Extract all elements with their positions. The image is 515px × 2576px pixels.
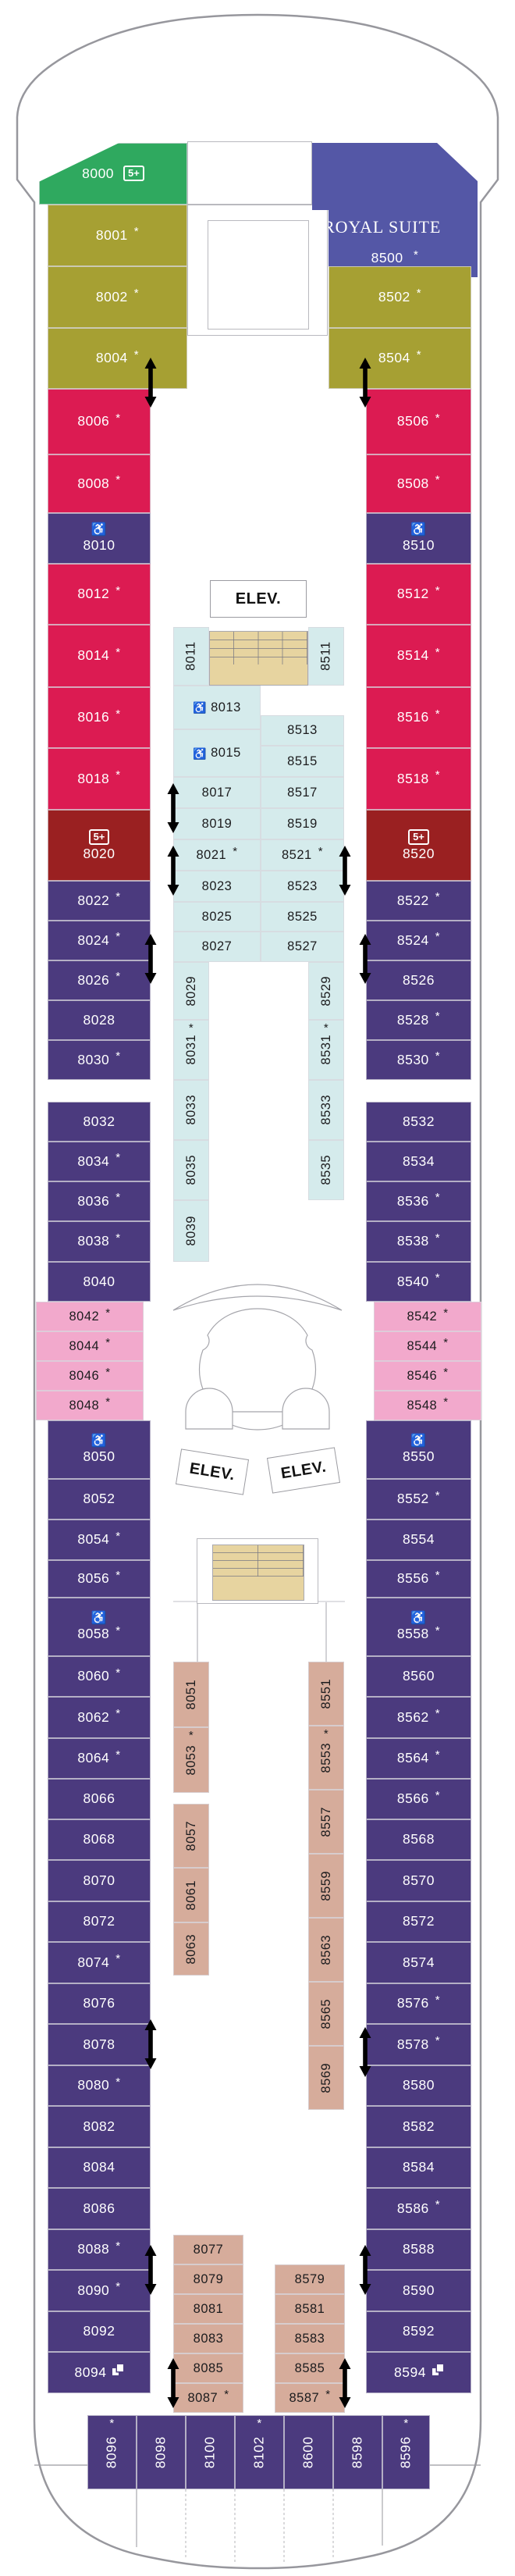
cabin-number: 8019 bbox=[202, 818, 233, 831]
cabin-number: 8552 bbox=[397, 1492, 429, 1506]
cabin-number: 8520 bbox=[403, 847, 435, 861]
cabin-number: 8001 bbox=[96, 229, 128, 243]
cabin-number: 8532 bbox=[403, 1115, 435, 1129]
cabin-number: 8048 bbox=[69, 1399, 99, 1413]
cabin-8096: 8096* bbox=[87, 2415, 137, 2489]
cabin-8027: 8027 bbox=[173, 932, 261, 962]
wheelchair-icon: ♿ bbox=[410, 1435, 426, 1448]
cabin-8581: 8581 bbox=[275, 2294, 345, 2324]
cabin-number: 8080 bbox=[77, 2079, 109, 2093]
cabin-number: 8034 bbox=[77, 1155, 109, 1169]
cabin-8010: ♿8010 bbox=[48, 513, 151, 564]
cabin-8046: 8046* bbox=[36, 1361, 144, 1391]
cabin-number: 8066 bbox=[83, 1792, 115, 1806]
cabin-number: 8560 bbox=[403, 1669, 435, 1683]
cabin-8036: 8036* bbox=[48, 1181, 151, 1221]
asterisk: * bbox=[105, 1366, 110, 1378]
cabin-number: 8580 bbox=[403, 2079, 435, 2093]
cabin-number: 8072 bbox=[83, 1915, 115, 1929]
cabin-8521: 8521* bbox=[261, 839, 344, 871]
cabin-number: 8521 bbox=[282, 849, 312, 862]
asterisk: * bbox=[189, 1022, 194, 1034]
cabin-8076: 8076 bbox=[48, 1983, 151, 2024]
elevator-label: ELEV. bbox=[188, 1459, 236, 1484]
cabin-number: 8558 bbox=[397, 1627, 429, 1641]
cabin-number: 8504 bbox=[378, 351, 410, 365]
wheelchair-icon: ♿ bbox=[410, 524, 426, 536]
cabin-number: 8102 bbox=[253, 2436, 267, 2468]
cabin-number: 8585 bbox=[295, 2362, 325, 2375]
cabin-8063: 8063 bbox=[173, 1922, 209, 1976]
cabin-8572: 8572 bbox=[366, 1901, 471, 1942]
cabin-8519: 8519 bbox=[261, 808, 344, 839]
cabin-number: 8098 bbox=[154, 2436, 169, 2468]
cabin-8584: 8584 bbox=[366, 2147, 471, 2188]
asterisk: * bbox=[435, 1749, 440, 1761]
cabin-8538: 8538* bbox=[366, 1221, 471, 1262]
asterisk: * bbox=[443, 1396, 448, 1408]
cabin-8553: 8553* bbox=[308, 1726, 344, 1790]
cabin-number: 8563 bbox=[320, 1935, 333, 1965]
cabin-number: 8030 bbox=[77, 1053, 109, 1067]
cabin-number: 8024 bbox=[77, 934, 109, 948]
cabin-8072: 8072 bbox=[48, 1901, 151, 1942]
cabin-number: 8060 bbox=[77, 1669, 109, 1683]
cabin-number: 8572 bbox=[403, 1915, 435, 1929]
cabin-number: 8512 bbox=[397, 587, 429, 601]
asterisk: * bbox=[115, 1667, 120, 1679]
asterisk: * bbox=[134, 349, 139, 361]
cabin-number: 8576 bbox=[397, 1997, 429, 2011]
cabin-8513: 8513 bbox=[261, 715, 344, 746]
cabin-8550: ♿8550 bbox=[366, 1420, 471, 1479]
cabin-8508: 8508* bbox=[366, 454, 471, 513]
cabin-8570: 8570 bbox=[366, 1860, 471, 1901]
cabin-number: 8023 bbox=[202, 880, 233, 893]
cabin-8053: 8053* bbox=[173, 1727, 209, 1793]
cabin-8014: 8014* bbox=[48, 625, 151, 687]
cabin-number: 8554 bbox=[403, 1533, 435, 1547]
cabin-number: 8038 bbox=[77, 1235, 109, 1249]
cabin-8518: 8518* bbox=[366, 748, 471, 810]
cabin-8025: 8025 bbox=[173, 902, 261, 932]
cabin-8032: 8032 bbox=[48, 1102, 151, 1142]
cabin-number: 8534 bbox=[403, 1155, 435, 1169]
wheelchair-icon: ♿ bbox=[410, 1612, 426, 1625]
cabin-number: 8579 bbox=[295, 2273, 325, 2286]
cabin-number: 8083 bbox=[194, 2332, 224, 2346]
cabin-8094: 8094 bbox=[48, 2352, 151, 2393]
asterisk: * bbox=[115, 412, 120, 424]
asterisk: * bbox=[325, 2389, 330, 2400]
cabin-number: 8061 bbox=[185, 1880, 198, 1911]
cabin-8534: 8534 bbox=[366, 1142, 471, 1181]
cabin-8524: 8524* bbox=[366, 921, 471, 960]
cabin-8554: 8554 bbox=[366, 1520, 471, 1560]
cabin-number: 8090 bbox=[77, 2284, 109, 2298]
cabin-8556: 8556* bbox=[366, 1560, 471, 1598]
cabin-number: 8559 bbox=[320, 1871, 333, 1901]
cabin-number: 8535 bbox=[320, 1155, 333, 1185]
asterisk: * bbox=[115, 1050, 120, 1062]
cabin-number: 8529 bbox=[320, 976, 333, 1007]
asterisk: * bbox=[115, 2281, 120, 2293]
cabin-number: 8042 bbox=[69, 1310, 99, 1324]
cabin-number: 8540 bbox=[397, 1275, 429, 1289]
cabin-8520: 5+8520 bbox=[366, 810, 471, 881]
cabin-8088: 8088* bbox=[48, 2229, 151, 2270]
stairs-arrow-icon bbox=[339, 2357, 352, 2409]
cabin-8515: 8515 bbox=[261, 746, 344, 777]
asterisk: * bbox=[435, 1272, 440, 1284]
cabin-number: 8022 bbox=[77, 894, 109, 908]
cabin-8600: 8600 bbox=[284, 2415, 333, 2489]
cabin-number: 8010 bbox=[83, 539, 115, 553]
cabin-8044: 8044* bbox=[36, 1331, 144, 1361]
cabin-number: 8531 bbox=[320, 1035, 333, 1065]
cabin-8015: ♿8015 bbox=[173, 729, 261, 777]
cabin-8050: ♿8050 bbox=[48, 1420, 151, 1479]
asterisk: * bbox=[115, 647, 120, 658]
cabin-8525: 8525 bbox=[261, 902, 344, 932]
cabin-8066: 8066 bbox=[48, 1779, 151, 1819]
cabin-8585: 8585 bbox=[275, 2353, 345, 2383]
cabin-number: 8581 bbox=[295, 2303, 325, 2316]
cabin-8019: 8019 bbox=[173, 808, 261, 839]
stairs-arrow-icon bbox=[167, 2357, 180, 2409]
stairs-arrow-icon bbox=[144, 2244, 158, 2296]
asterisk: * bbox=[115, 769, 120, 781]
stairs-arrow-icon bbox=[359, 357, 372, 408]
cabin-number: 8087 bbox=[187, 2392, 218, 2405]
cabin-number: 8100 bbox=[204, 2436, 218, 2468]
wheelchair-icon: ♿ bbox=[91, 1435, 107, 1448]
stairs-icon bbox=[167, 782, 180, 834]
stairs-grid bbox=[210, 632, 307, 664]
asterisk: * bbox=[435, 1490, 440, 1502]
cabin-number: 8502 bbox=[378, 290, 410, 305]
cabin-number: 8596 bbox=[400, 2436, 414, 2468]
cabin-8533: 8533 bbox=[308, 1080, 344, 1140]
cabin-8018: 8018* bbox=[48, 748, 151, 810]
cabin-number: 8020 bbox=[83, 847, 115, 861]
cabin-number: 8078 bbox=[83, 2038, 115, 2052]
asterisk: * bbox=[435, 891, 440, 903]
cabin-number: 8583 bbox=[295, 2332, 325, 2346]
cabin-8586: 8586* bbox=[366, 2188, 471, 2229]
cabin-number: 8004 bbox=[96, 351, 128, 365]
cabin-number: 8032 bbox=[83, 1115, 115, 1129]
cabin-number: 8013 bbox=[211, 701, 241, 714]
asterisk: * bbox=[435, 1790, 440, 1801]
cabin-8527: 8527 bbox=[261, 932, 344, 962]
cabin-8098: 8098 bbox=[137, 2415, 186, 2489]
asterisk: * bbox=[115, 1152, 120, 1163]
asterisk: * bbox=[435, 769, 440, 781]
cabin-number: 8515 bbox=[287, 755, 318, 768]
cabin-number: 8077 bbox=[194, 2243, 224, 2257]
stairs-icon bbox=[167, 2357, 180, 2409]
cabin-number: 8510 bbox=[403, 539, 435, 553]
cabin-8087: 8087* bbox=[173, 2383, 243, 2413]
stairs-icon bbox=[359, 357, 372, 408]
cabin-number: 8557 bbox=[320, 1807, 333, 1837]
cabin-number: 8068 bbox=[83, 1833, 115, 1847]
cabin-number: 8052 bbox=[83, 1492, 115, 1506]
asterisk: * bbox=[115, 891, 120, 903]
elevator-label: ELEV. bbox=[236, 590, 281, 608]
cabin-number: 8046 bbox=[69, 1370, 99, 1383]
asterisk: * bbox=[115, 585, 120, 597]
cabin-8052: 8052 bbox=[48, 1479, 151, 1520]
asterisk: * bbox=[318, 846, 323, 857]
cabin-8040: 8040 bbox=[48, 1262, 151, 1302]
asterisk: * bbox=[417, 287, 421, 299]
asterisk: * bbox=[224, 2389, 229, 2400]
cabin-8002: 8002* bbox=[48, 266, 187, 328]
cabin-number: 8057 bbox=[185, 1821, 198, 1851]
cabin-8535: 8535 bbox=[308, 1140, 344, 1200]
cabin-8540: 8540* bbox=[366, 1262, 471, 1302]
asterisk: * bbox=[324, 1728, 329, 1740]
cabin-8039: 8039 bbox=[173, 1200, 209, 1262]
cabin-number: 8551 bbox=[320, 1679, 333, 1709]
cabin-8504: 8504* bbox=[329, 328, 471, 389]
cabin-number: 8088 bbox=[77, 2243, 109, 2257]
cabin-8086: 8086 bbox=[48, 2188, 151, 2229]
wheelchair-icon: ♿ bbox=[91, 1612, 107, 1625]
asterisk: * bbox=[115, 1625, 120, 1637]
cabin-8558: ♿8558* bbox=[366, 1598, 471, 1656]
asterisk: * bbox=[115, 1953, 120, 1965]
cabin-8016: 8016* bbox=[48, 687, 151, 748]
cabin-number: 8026 bbox=[77, 974, 109, 988]
cabin-number: 8033 bbox=[185, 1095, 198, 1125]
cabin-8038: 8038* bbox=[48, 1221, 151, 1262]
asterisk: * bbox=[105, 1396, 110, 1408]
cabin-8023: 8023 bbox=[173, 871, 261, 902]
asterisk: * bbox=[134, 287, 139, 299]
cabin-8551: 8551 bbox=[308, 1662, 344, 1726]
stairs-icon bbox=[359, 2244, 372, 2296]
cabin-number: 8506 bbox=[397, 415, 429, 429]
cabin-number: 8548 bbox=[407, 1399, 437, 1413]
cabin-8070: 8070 bbox=[48, 1860, 151, 1901]
stairs-arrow-icon bbox=[359, 2026, 372, 2078]
cabin-8068: 8068 bbox=[48, 1819, 151, 1860]
cabin-number: 8536 bbox=[397, 1195, 429, 1209]
cabin-number: 8587 bbox=[289, 2392, 319, 2405]
cabin-number: 8085 bbox=[194, 2362, 224, 2375]
asterisk: * bbox=[115, 708, 120, 720]
cabin-8090: 8090* bbox=[48, 2270, 151, 2311]
cabin-8598: 8598 bbox=[333, 2415, 382, 2489]
cabin-8021: 8021* bbox=[173, 839, 261, 871]
cabin-number: 8025 bbox=[202, 910, 233, 924]
connecting-rooms-icon bbox=[112, 2364, 123, 2375]
cabin-8523: 8523 bbox=[261, 871, 344, 902]
cabin-8565: 8565 bbox=[308, 1982, 344, 2046]
cabin-number: 8044 bbox=[69, 1340, 99, 1353]
asterisk: * bbox=[324, 1022, 329, 1034]
cabin-8033: 8033 bbox=[173, 1080, 209, 1140]
cabin-8080: 8080* bbox=[48, 2065, 151, 2106]
cabin-number: 8074 bbox=[77, 1956, 109, 1970]
cabin-8590: 8590 bbox=[366, 2270, 471, 2311]
stairs-icon bbox=[339, 845, 352, 896]
cabin-8035: 8035 bbox=[173, 1140, 209, 1200]
asterisk: * bbox=[435, 708, 440, 720]
cabin-number: 8594 bbox=[394, 2366, 426, 2380]
stairs-arrow-icon bbox=[359, 933, 372, 985]
cabin-number: 8518 bbox=[397, 772, 429, 786]
asterisk: * bbox=[233, 846, 237, 857]
cabin-8081: 8081 bbox=[173, 2294, 243, 2324]
wheelchair-icon: ♿ bbox=[91, 524, 107, 536]
cabin-8576: 8576* bbox=[366, 1983, 471, 2024]
asterisk: * bbox=[435, 474, 440, 486]
asterisk: * bbox=[435, 931, 440, 942]
cabin-8512: 8512* bbox=[366, 564, 471, 625]
cabin-8526: 8526 bbox=[366, 960, 471, 1000]
asterisk: * bbox=[189, 1730, 194, 1741]
cabin-number: 8569 bbox=[320, 2063, 333, 2093]
cabin-8514: 8514* bbox=[366, 625, 471, 687]
cabin-number: 8016 bbox=[77, 711, 109, 725]
cabin-number: 8015 bbox=[211, 746, 241, 760]
asterisk: * bbox=[435, 412, 440, 424]
cabin-number: 8522 bbox=[397, 894, 429, 908]
cabin-number: 8064 bbox=[77, 1751, 109, 1765]
cabin-number: 8600 bbox=[302, 2436, 316, 2468]
cabin-8042: 8042* bbox=[36, 1302, 144, 1331]
asterisk: * bbox=[115, 1569, 120, 1581]
five-plus-icon: 5+ bbox=[89, 829, 110, 845]
asterisk: * bbox=[435, 1569, 440, 1581]
cabin-8024: 8024* bbox=[48, 921, 151, 960]
stairs-icon bbox=[144, 2018, 158, 2070]
cabin-number: 8008 bbox=[77, 477, 109, 491]
cabin-8510: ♿8510 bbox=[366, 513, 471, 564]
cabin-number: 8526 bbox=[403, 974, 435, 988]
cabin-8013: ♿8013 bbox=[173, 686, 261, 729]
cabin-number: 8527 bbox=[287, 940, 318, 953]
cabin-8022: 8022* bbox=[48, 881, 151, 921]
asterisk: * bbox=[435, 1625, 440, 1637]
cabin-number: 8092 bbox=[83, 2325, 115, 2339]
asterisk: * bbox=[115, 2076, 120, 2088]
cabin-8528: 8528* bbox=[366, 1000, 471, 1040]
connecting-rooms-icon bbox=[432, 2364, 443, 2375]
cabin-number: 8002 bbox=[96, 290, 128, 305]
cabin-8001: 8001* bbox=[48, 205, 187, 266]
cabin-number: 8094 bbox=[75, 2366, 107, 2380]
cabin-8102: 8102* bbox=[235, 2415, 284, 2489]
cabin-number: 8014 bbox=[77, 649, 109, 663]
stairs-icon bbox=[144, 933, 158, 985]
cabin-8544: 8544* bbox=[374, 1331, 481, 1361]
cabin-number: 8550 bbox=[403, 1450, 435, 1464]
asterisk: * bbox=[417, 349, 421, 361]
cabin-number: 8519 bbox=[287, 818, 318, 831]
cabin-number: 8040 bbox=[83, 1275, 115, 1289]
cabin-number: 8542 bbox=[407, 1310, 437, 1324]
cabin-number: 8511 bbox=[320, 642, 333, 671]
cabin-8578: 8578* bbox=[366, 2024, 471, 2065]
cabin-8034: 8034* bbox=[48, 1142, 151, 1181]
cabin-8587: 8587* bbox=[275, 2383, 345, 2413]
cabin-number: 8500 * bbox=[371, 250, 419, 266]
cabin-number: 8592 bbox=[403, 2325, 435, 2339]
cabin-number: 8096 bbox=[105, 2436, 119, 2468]
cabin-8064: 8064* bbox=[48, 1738, 151, 1779]
stairs-arrow-icon bbox=[144, 933, 158, 985]
cabin-number: 8053 bbox=[185, 1745, 198, 1776]
cabin-number: 8584 bbox=[403, 2161, 435, 2175]
cabin-royal-suite: ROYAL SUITE 8500 * bbox=[312, 143, 478, 277]
cabin-number: 8062 bbox=[77, 1711, 109, 1725]
cabin-number: 8566 bbox=[397, 1792, 429, 1806]
cabin-8506: 8506* bbox=[366, 389, 471, 454]
stairs-icon bbox=[144, 357, 158, 408]
five-plus-icon: 5+ bbox=[408, 829, 429, 845]
asterisk: * bbox=[105, 1307, 110, 1319]
asterisk: * bbox=[115, 2240, 120, 2252]
cabin-8574: 8574 bbox=[366, 1942, 471, 1983]
cabin-8008: 8008* bbox=[48, 454, 151, 513]
stairs-icon bbox=[359, 2026, 372, 2078]
cabin-number: 8021 bbox=[196, 849, 226, 862]
cabin-8559: 8559 bbox=[308, 1854, 344, 1918]
cabin-8085: 8085 bbox=[173, 2353, 243, 2383]
cabin-8074: 8074* bbox=[48, 1942, 151, 1983]
cabin-8062: 8062* bbox=[48, 1697, 151, 1738]
asterisk: * bbox=[403, 2417, 408, 2429]
cabin-8031: 8031* bbox=[173, 1020, 209, 1080]
asterisk: * bbox=[115, 931, 120, 942]
cabin-number: 8081 bbox=[194, 2303, 224, 2316]
cabin-number: 8036 bbox=[77, 1195, 109, 1209]
cabin-number: 8523 bbox=[287, 880, 318, 893]
stairs-arrow-icon bbox=[339, 845, 352, 896]
cabin-8028: 8028 bbox=[48, 1000, 151, 1040]
structure-box bbox=[208, 220, 309, 330]
cabin-number: 8086 bbox=[83, 2202, 115, 2216]
cabin-8560: 8560 bbox=[366, 1656, 471, 1697]
stairs-arrow-icon bbox=[359, 2244, 372, 2296]
cabin-8060: 8060* bbox=[48, 1656, 151, 1697]
cabin-number: 8546 bbox=[407, 1370, 437, 1383]
cabin-8517: 8517 bbox=[261, 777, 344, 808]
asterisk: * bbox=[435, 1232, 440, 1244]
cabin-8078: 8078 bbox=[48, 2024, 151, 2065]
five-plus-icon: 5+ bbox=[123, 166, 144, 181]
cabin-8061: 8061 bbox=[173, 1868, 209, 1922]
cabin-number: 8525 bbox=[287, 910, 318, 924]
cabin-number: 8017 bbox=[202, 786, 233, 800]
cabin-8542: 8542* bbox=[374, 1302, 481, 1331]
cabin-number: 8050 bbox=[83, 1450, 115, 1464]
cabin-8582: 8582 bbox=[366, 2106, 471, 2147]
cabin-8522: 8522* bbox=[366, 881, 471, 921]
cabin-number: 8528 bbox=[397, 1014, 429, 1028]
cabin-number: 8011 bbox=[185, 642, 198, 671]
stairs-icon bbox=[167, 845, 180, 896]
cabin-8566: 8566* bbox=[366, 1779, 471, 1819]
asterisk: * bbox=[443, 1337, 448, 1349]
cabin-8029: 8029 bbox=[173, 962, 209, 1020]
cabin-number: 8029 bbox=[185, 976, 198, 1007]
